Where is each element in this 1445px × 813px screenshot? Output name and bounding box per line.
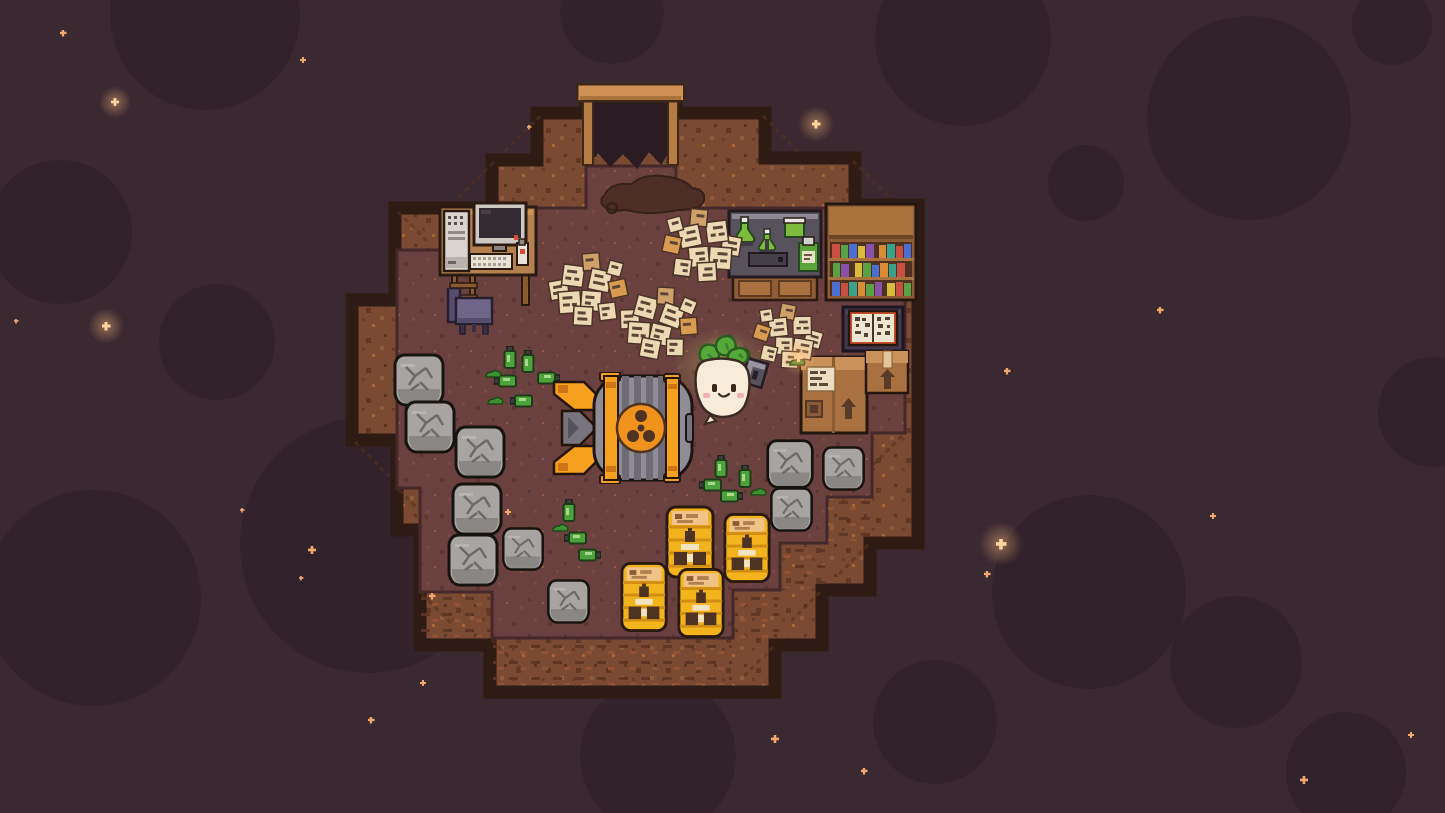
plate-knob: [778, 257, 783, 262]
tail-cone: [562, 411, 597, 445]
turnip-character[interactable]: [686, 330, 778, 434]
drawer[interactable]: [779, 281, 811, 296]
boulder[interactable]: [820, 445, 867, 496]
cardboard-box-small[interactable]: [864, 349, 910, 399]
green-bottle-tipped[interactable]: [510, 393, 534, 412]
paper-pile[interactable]: [652, 208, 744, 292]
radioactive-barrel[interactable]: [620, 560, 668, 638]
boulder[interactable]: [768, 486, 815, 537]
turnip-body: [696, 359, 750, 425]
green-bottle[interactable]: [503, 346, 517, 374]
boulder[interactable]: [452, 424, 508, 484]
keyboard[interactable]: [470, 254, 512, 269]
book-row[interactable]: [828, 242, 914, 261]
chair[interactable]: [446, 288, 496, 346]
burner-pole: [765, 239, 769, 253]
open-book[interactable]: [849, 311, 897, 345]
spray-bottle[interactable]: [517, 239, 528, 265]
boulder[interactable]: [500, 526, 546, 576]
radioactive-barrel[interactable]: [677, 567, 725, 643]
boulder[interactable]: [445, 532, 501, 592]
book-row[interactable]: [828, 261, 914, 280]
green-sludge[interactable]: [551, 518, 569, 537]
green-bottle-tipped[interactable]: [719, 488, 743, 507]
green-sludge[interactable]: [486, 391, 504, 410]
green-bottle[interactable]: [521, 350, 535, 378]
shelf-top: [829, 207, 913, 237]
radioactive-barrel[interactable]: [723, 512, 771, 588]
game-viewport: [0, 0, 1445, 813]
green-bottle-tipped[interactable]: [577, 547, 601, 566]
boulder[interactable]: [402, 399, 458, 459]
green-sludge[interactable]: [484, 364, 502, 383]
red-led: [514, 235, 518, 240]
beaker[interactable]: [784, 218, 805, 237]
computer-tower[interactable]: [444, 211, 469, 271]
bookshelf[interactable]: [824, 202, 918, 306]
book-row[interactable]: [830, 280, 912, 296]
boulder[interactable]: [545, 578, 592, 629]
canister[interactable]: [799, 237, 818, 271]
